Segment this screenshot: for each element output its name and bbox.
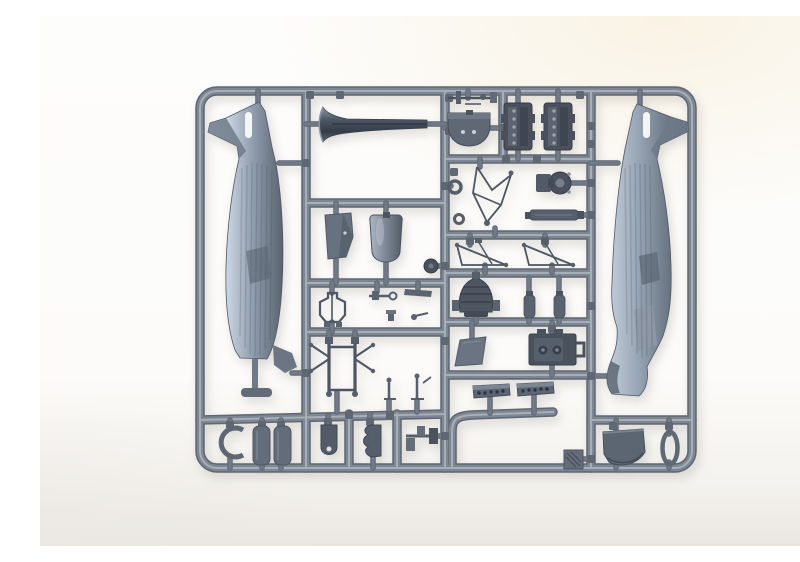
fuel-tank-tub (370, 212, 403, 262)
ribbed-dome-shape (452, 300, 459, 311)
gate-nub (609, 422, 617, 430)
exhaust-manifold-a-shape (495, 390, 498, 393)
cockpit-side-panel (325, 213, 353, 259)
bracket-fitting-shape (417, 426, 425, 436)
fuselage-former-frame-shape (336, 322, 342, 327)
engine-block-half-a-shape (501, 131, 505, 140)
fuel-tank-tub-shape (376, 218, 384, 246)
oval-ring (663, 432, 678, 464)
ribbed-dome-shape (459, 278, 492, 312)
exhaust-manifold-a-shape (489, 390, 492, 393)
grommet-ring-small-shape (455, 215, 464, 224)
engine-block-half-b-shape (541, 131, 545, 140)
sprue-photo (40, 16, 800, 546)
rotary-pump-shape (567, 172, 571, 176)
hatch-panel-b (274, 426, 291, 465)
radiator-block-shape (576, 343, 584, 356)
engine-block-half-b-shape (552, 141, 555, 144)
exhaust-manifold-a (473, 384, 510, 398)
curved-runner (452, 412, 553, 468)
screw-fitting-shape (386, 310, 396, 314)
fairing-strip (525, 210, 584, 220)
landing-gear-frame-shape (309, 369, 313, 373)
gate-nub (441, 432, 449, 440)
exhaust-manifold-b (517, 382, 554, 396)
fuel-tank-tub-shape (370, 215, 403, 262)
control-rod-ring (369, 291, 397, 300)
grommet-ring-small (455, 215, 464, 224)
landing-gear-frame-shape (325, 337, 333, 344)
engine-block-half-b-shape (571, 131, 575, 140)
engine-block-half-a-shape (512, 125, 515, 128)
flat-bar-small (404, 289, 432, 297)
left-fuselage-half-shape (246, 246, 271, 284)
engine-block-half-a-shape (520, 107, 528, 146)
gate-nub (302, 369, 310, 377)
jack-strut-b-shape (415, 374, 420, 379)
rotary-pump-shape (567, 190, 571, 194)
gate-nub (336, 91, 344, 99)
exhaust-manifold-a-shape (501, 389, 504, 392)
cowl-ring-segment-shape (221, 428, 243, 457)
right-fuselage-half-shape (607, 104, 689, 396)
bracket-fitting (406, 426, 438, 451)
engine-block-half-b-shape (552, 133, 555, 136)
engine-block-half-b-shape (560, 107, 568, 146)
left-fuselage-half-shape (252, 359, 258, 390)
exhaust-manifold-b-shape (521, 389, 524, 392)
curved-runner (452, 412, 553, 468)
cabane-strut-right-shape (541, 238, 548, 243)
landing-gear-frame-shape (326, 391, 332, 397)
rotary-pump-shape (556, 179, 565, 188)
engine-block-half-a (501, 103, 535, 150)
ribbed-dome-shape (493, 300, 500, 311)
gate-nub (386, 411, 394, 419)
flat-bar-small-shape (404, 289, 432, 297)
engine-block-half-b-shape (552, 117, 555, 120)
gate-nub (502, 155, 510, 163)
cockpit-side-panel-shape (343, 231, 346, 234)
gate-nub (306, 91, 314, 99)
gate-nub (587, 179, 595, 187)
ball-rod (411, 313, 428, 320)
exhaust-manifold-b-shape (533, 388, 536, 391)
bracket-fitting-shape (406, 438, 415, 451)
gate-nub (450, 168, 458, 176)
landing-gear-frame-shape (352, 391, 358, 397)
gate-nub (587, 211, 595, 219)
gate-nub (441, 337, 449, 345)
gate-nub (587, 455, 595, 463)
fuselage-former-frame-shape (324, 322, 330, 327)
right-fuselage-half-shape (639, 252, 660, 285)
ball-rod-shape (415, 313, 428, 316)
hatch-panel-b-shape (274, 426, 291, 465)
exhaust-manifold-b-shape (527, 388, 530, 391)
gate-nub (533, 155, 541, 163)
landing-gear-frame (309, 337, 375, 397)
cabane-strut-right-shape (571, 263, 575, 267)
engine-block-half-a-shape (512, 109, 515, 112)
engine-block-half-a-shape (512, 117, 515, 120)
sprue-photo-svg (40, 16, 800, 546)
engine-block-half-a-shape (531, 131, 535, 140)
landing-gear-frame-shape (371, 369, 375, 373)
exhaust-manifold-b-shape (545, 387, 548, 390)
ribbed-dome (452, 272, 500, 317)
left-fuselage-half-shape (273, 345, 297, 373)
landing-gear-frame-shape (311, 359, 329, 371)
firewall-half-round-shape (461, 130, 465, 134)
brace-wireframe-shape (473, 167, 511, 222)
firewall-half-round-shape (466, 110, 473, 115)
jack-strut-a (384, 378, 396, 400)
landing-gear-frame-shape (371, 343, 375, 347)
ribbed-dome-shape (464, 311, 488, 317)
jack-strut-b-shape (423, 377, 431, 383)
cabane-strut-left (455, 238, 508, 267)
radiator-block-shape (555, 348, 559, 352)
brace-wireframe-shape (484, 220, 490, 226)
gate-nub (345, 411, 353, 419)
cylinder-part-a-shape (524, 295, 535, 318)
radiator-block-shape (554, 329, 563, 335)
exhaust-manifold-b-shape (539, 387, 542, 390)
brace-wireframe (473, 167, 514, 226)
hatch-panel-a-shape (253, 426, 270, 465)
cylinder-part-b (554, 291, 565, 318)
right-fuselage-half (607, 104, 689, 396)
gun-rod-part-shape (456, 91, 461, 104)
gate-nub (587, 122, 595, 130)
cylinder-part-a (524, 291, 535, 318)
radiator-block-shape (541, 348, 545, 352)
engine-block-half-a-shape (531, 114, 535, 123)
tailwheel-disc-shape (429, 264, 434, 269)
headrest-tombstone-shape (327, 447, 332, 452)
left-fuselage-half-shape (241, 388, 272, 397)
gun-rod-part-shape (480, 94, 486, 100)
landing-gear-frame-shape (309, 343, 313, 347)
gate-nub (587, 140, 595, 148)
landing-gear-frame-shape (311, 345, 329, 357)
cowl-ring-segment (221, 428, 243, 457)
plate-parallelogram-shape (455, 337, 486, 366)
engine-block-half-b-shape (541, 114, 545, 123)
cabane-strut-left-shape (504, 263, 508, 267)
control-rod-ring-shape (390, 293, 397, 300)
landing-gear-frame-shape (351, 337, 359, 344)
curved-runner (452, 412, 553, 468)
firewall-half-round-shape (472, 130, 476, 134)
firewall-half-round (448, 110, 490, 146)
rotary-pump (536, 172, 571, 194)
gate-nub (665, 422, 673, 430)
cylinder-part-b-shape (556, 291, 563, 296)
engine-block-half-b-shape (571, 114, 575, 123)
spinner-fairing-horn (319, 107, 427, 142)
gate-nub (587, 372, 595, 380)
fuselage-former-frame (320, 293, 345, 327)
hatch-panel-a (253, 426, 270, 465)
cylinder-part-b-shape (554, 295, 565, 318)
ball-rod-shape (411, 314, 417, 320)
radiator-block-shape (537, 329, 546, 335)
exhaust-manifold-a-shape (477, 391, 480, 394)
rotary-pump-shape (548, 178, 554, 188)
fuel-tank-tub-shape (383, 212, 390, 218)
left-fuselage-half (208, 102, 297, 397)
engine-block-half-b (541, 103, 575, 150)
gun-rod-part-shape (490, 92, 497, 103)
engine-block-half-a-shape (512, 141, 515, 144)
scalloped-cowl (364, 425, 382, 457)
jack-strut-a-shape (387, 378, 392, 383)
right-fuselage-half-shape (643, 112, 650, 138)
jack-strut-b (411, 374, 431, 400)
mold-stamp-pad (564, 450, 583, 469)
gate-nub (576, 91, 584, 99)
cabane-strut-right-shape (544, 241, 558, 264)
cabane-strut-right-shape (522, 243, 526, 247)
plate-parallelogram (455, 337, 486, 366)
gate-nub (302, 159, 310, 167)
exhaust-manifold-a-shape (483, 391, 486, 394)
cabane-strut-left-shape (455, 243, 459, 247)
oval-ring-shape (663, 432, 678, 464)
control-rod-ring-shape (372, 291, 379, 300)
tailwheel-disc (424, 259, 438, 273)
landing-gear-frame-shape (355, 345, 373, 357)
gate-nub (587, 302, 595, 310)
fairing-strip-shape (525, 212, 531, 219)
cowl-bucket (603, 429, 645, 465)
ribbed-dome-shape (472, 272, 480, 279)
landing-gear-frame-shape (355, 359, 373, 371)
gate-nub (466, 237, 474, 245)
radiator-block (529, 329, 584, 365)
fairing-strip-shape (577, 211, 584, 219)
engine-block-half-b-shape (552, 125, 555, 128)
engine-block-half-a-shape (512, 133, 515, 136)
brace-wireframe-shape (509, 171, 514, 176)
left-fuselage-half-shape (245, 112, 252, 138)
scalloped-cowl-shape (364, 425, 382, 457)
engine-block-half-a-shape (501, 114, 505, 123)
engine-block-half-b-shape (552, 109, 555, 112)
cabane-strut-left-shape (478, 241, 492, 264)
screw-fitting (386, 310, 396, 321)
headrest-tombstone (321, 425, 337, 455)
gate-nub (441, 262, 449, 270)
cylinder-part-a-shape (526, 291, 533, 296)
bracket-fitting-shape (429, 428, 438, 444)
cabane-strut-left-shape (475, 238, 482, 243)
